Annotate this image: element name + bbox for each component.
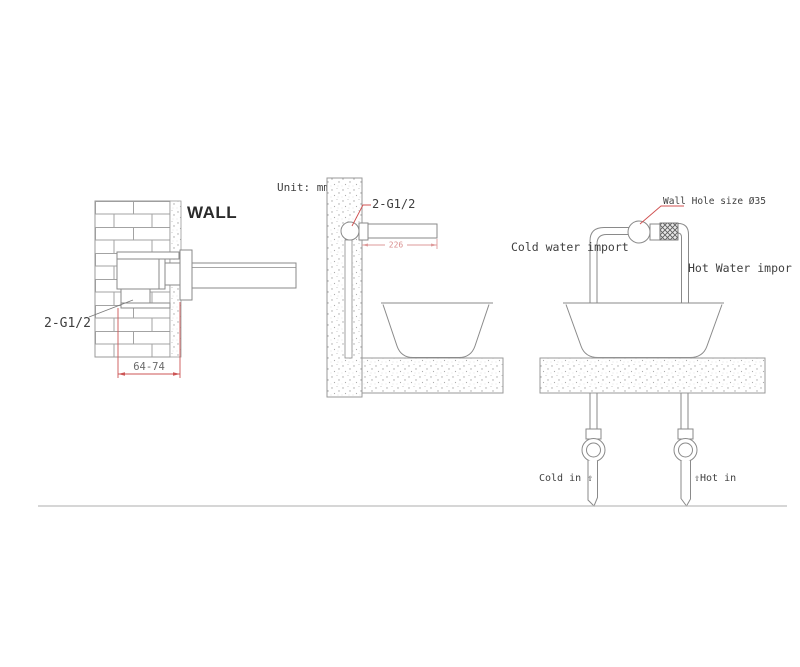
basin-body [566, 305, 722, 358]
unit-label: Unit: mm [277, 181, 330, 194]
hot-pipe-inner [678, 233, 682, 303]
thread-label: 2-G1/2 [44, 316, 91, 331]
dim-arrow-right [431, 244, 437, 247]
countertop-slab [540, 358, 765, 393]
dim-arrow-right [173, 372, 180, 376]
faucet-spout [368, 224, 437, 238]
vessel-basin [563, 303, 724, 358]
hot-in-label: ⇧Hot in [694, 473, 736, 484]
cold-import-label: Cold water import [511, 240, 629, 254]
wall-hatch-block [660, 223, 678, 240]
faucet-connector [165, 263, 180, 285]
hot-pipe-outer [678, 224, 689, 304]
vessel-basin [381, 303, 493, 358]
countertop-slab [362, 358, 503, 393]
right-plumbing-schematic-view: Wall Hole size Ø35 Cold water import Hot… [511, 196, 792, 506]
hot-valve-nut [678, 429, 693, 439]
wall-hole-leader-line [640, 206, 684, 224]
faucet-installation-diagram: WALL 2-G1/2 64-74 Unit: mm [0, 0, 800, 667]
wall-hole-circle [628, 221, 650, 243]
side-wall [327, 178, 362, 397]
wall-hole-label: Wall Hole size Ø35 [663, 196, 766, 207]
cold-in-label: Cold in ⇧ [539, 473, 593, 484]
hot-import-label: Hot Water impor [688, 261, 792, 275]
dim-arrow-left [362, 244, 368, 247]
faucet-lower-port [121, 289, 150, 303]
diagram-sheet: WALL 2-G1/2 64-74 Unit: mm [0, 0, 800, 667]
spout-connector [359, 223, 368, 240]
faucet-spout [192, 263, 296, 288]
cold-valve-body [582, 439, 605, 462]
cold-valve-nut [586, 429, 601, 439]
left-wall-section-view: WALL 2-G1/2 64-74 [44, 201, 296, 378]
faucet-elbow-joint [341, 222, 359, 240]
hot-supply-assembly [674, 393, 697, 506]
faucet-top-plate [117, 252, 179, 259]
wall-faucet [341, 222, 437, 240]
thread-label: 2-G1/2 [372, 197, 415, 211]
hole-collar [650, 224, 660, 240]
cold-supply-assembly [582, 393, 605, 506]
wall-label: WALL [187, 203, 237, 222]
embedded-faucet-body [117, 250, 296, 308]
basin-body [383, 305, 489, 358]
in-wall-supply-pipe [345, 240, 352, 358]
wall-flange [180, 250, 192, 300]
faucet-lower-strip [121, 303, 170, 308]
spout-dimension-label: 226 [389, 241, 404, 250]
cold-pipe-outer [590, 228, 630, 304]
faucet-valve-body [117, 259, 165, 289]
middle-side-elevation-view: Unit: mm 2-G1/2 226 [277, 178, 503, 397]
hot-valve-body [674, 439, 697, 462]
dim-arrow-left [118, 372, 125, 376]
hot-inlet-tail-pipe [681, 461, 691, 507]
depth-dimension-label: 64-74 [133, 361, 165, 373]
